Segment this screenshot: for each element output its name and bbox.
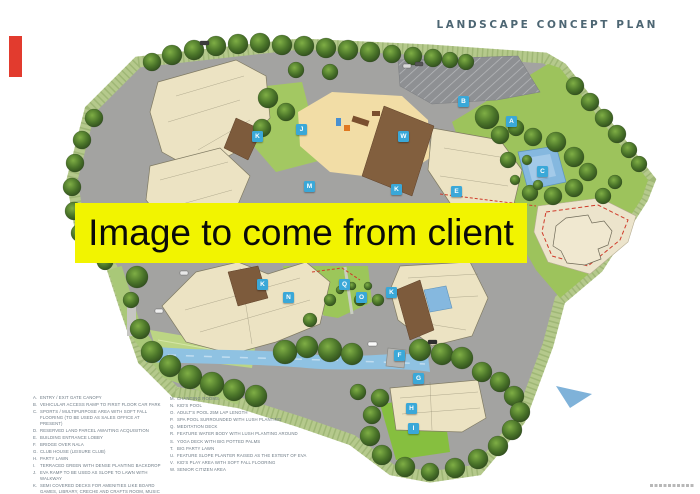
legend-item-T: T.BIG PARTY LAWN <box>170 446 322 452</box>
plan-marker-K: K <box>257 279 268 290</box>
legend-item-U: U.FEATURE SLOPE PLANTER RAISED AS THE EX… <box>170 453 322 459</box>
legend-item-N: N.KID'S POOL <box>170 403 322 409</box>
legend-item-R: R.FEATURE WATER BODY WITH LUSH PLANTING … <box>170 431 322 437</box>
plan-marker-C: C <box>537 166 548 177</box>
plan-marker-W: W <box>398 131 409 142</box>
legend-item-K: K.SEMI COVERED DECKS FOR AMENITIES LIKE … <box>33 483 161 494</box>
plan-marker-H: H <box>406 403 417 414</box>
banner-text: Image to come from client <box>88 212 514 254</box>
plan-marker-I: I <box>408 423 419 434</box>
plan-marker-O: O <box>356 292 367 303</box>
legend-item-F: F.BRIDGE OVER NALA <box>33 442 161 448</box>
legend-item-G: G.CLUB HOUSE (LEISURE CLUB) <box>33 449 161 455</box>
plan-marker-M: M <box>304 181 315 192</box>
legend-item-M: M.CHANGING ROOMS <box>170 396 322 402</box>
plan-marker-G: G <box>413 373 424 384</box>
legend-column-left: A.ENTRY / EXIT GATE CANOPYB.VEHICULAR AC… <box>33 395 161 494</box>
legend-item-I: I.TERRACED GREEN WITH DENSE PLANTING BAC… <box>33 463 161 469</box>
plan-marker-K: K <box>252 131 263 142</box>
plan-marker-Q: Q <box>339 279 350 290</box>
legend-item-S: S.YOGA DECK WITH BIG POTTED PALMS <box>170 439 322 445</box>
plan-marker-F: F <box>394 350 405 361</box>
plan-marker-J: J <box>296 124 307 135</box>
plan-marker-A: A <box>506 116 517 127</box>
legend-item-E: E.BUILDING ENTRANCE LOBBY <box>33 435 161 441</box>
legend-item-A: A.ENTRY / EXIT GATE CANOPY <box>33 395 161 401</box>
client-image-placeholder-banner: Image to come from client <box>75 203 527 263</box>
plan-marker-N: N <box>283 292 294 303</box>
legend-item-C: C.SPORTS / MULTIPURPOSE AREA WITH SOFT F… <box>33 409 161 426</box>
legend-item-H: H.PARTY LAWN <box>33 456 161 462</box>
legend-item-V: V.KID'S PLAY AREA WITH SOFT FALL FLOORIN… <box>170 460 322 466</box>
plan-marker-K: K <box>386 287 397 298</box>
plan-marker-B: B <box>458 96 469 107</box>
plan-marker-E: E <box>451 186 462 197</box>
legend-item-P: P.SPA POOL SURROUNDED WITH LUSH PLANTING <box>170 417 322 423</box>
plan-marker-K: K <box>391 184 402 195</box>
legend-item-O: O.ADULT'S POOL 25M LAP LENGTH <box>170 410 322 416</box>
legend-item-B: B.VEHICULAR ACCESS RAMP TO FIRST FLOOR C… <box>33 402 161 408</box>
fine-print-watermark <box>650 484 694 487</box>
legend-item-W: W.SENIOR CITIZEN AREA <box>170 467 322 473</box>
legend-column-right: M.CHANGING ROOMSN.KID'S POOLO.ADULT'S PO… <box>170 396 322 474</box>
page-title: LANDSCAPE CONCEPT PLAN <box>436 19 658 31</box>
red-annotation-bar <box>9 36 22 77</box>
legend-item-D: D.RESERVED LAND PARCEL AWAITING ACQUISIT… <box>33 428 161 434</box>
legend-item-Q: Q.MEDITATION DECK <box>170 424 322 430</box>
landscape-concept-plan-sheet: KJMWBACEKKQKNOFGHI LANDSCAPE CONCEPT PLA… <box>0 0 700 494</box>
legend-item-J: J.EVA RAMP TO BE USED AS SLOPE TO LAWN W… <box>33 470 161 481</box>
